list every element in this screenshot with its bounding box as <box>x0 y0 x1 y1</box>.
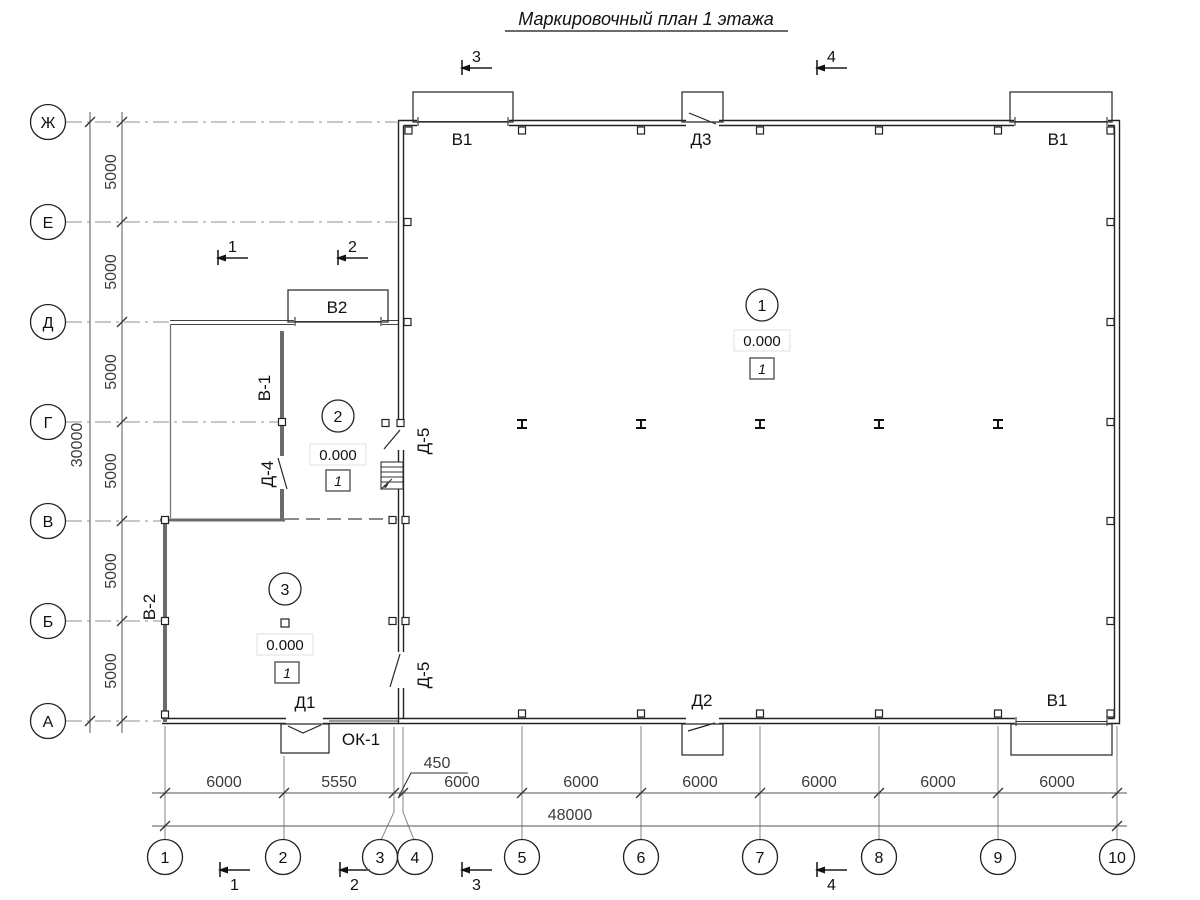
section-mark-3-bottom: 3 <box>472 877 481 894</box>
bottom-dimensions: 6000 5550 6000 6000 6000 6000 6000 6000 … <box>152 755 1127 831</box>
label-wall-v1: В-1 <box>255 375 274 401</box>
section-mark-1-mid: 1 <box>228 239 237 256</box>
section-marks: 3 4 1 2 1 2 3 4 <box>216 49 847 894</box>
dim-5000-5: 5000 <box>103 553 120 589</box>
label-gate-b2: В2 <box>327 298 348 317</box>
col-axis-7: 7 <box>756 850 765 867</box>
room3-finish: 1 <box>283 665 291 681</box>
dim-5000-4: 5000 <box>103 453 120 489</box>
room1-elevation: 0.000 <box>743 333 781 350</box>
dim-b-2: 5550 <box>321 774 357 791</box>
col-axis-lines <box>165 726 1117 840</box>
room3-elevation: 0.000 <box>266 637 304 654</box>
room2-elevation: 0.000 <box>319 447 357 464</box>
label-door-d4: Д-4 <box>258 461 277 488</box>
room1-finish: 1 <box>758 361 766 377</box>
drawing-page: Маркировочный план 1 этажа <box>0 0 1200 900</box>
col-axis-9: 9 <box>994 850 1003 867</box>
label-window-ok1: ОК-1 <box>342 730 380 749</box>
row-axis-v: В <box>43 514 54 531</box>
room3-number: 3 <box>281 582 290 599</box>
row-axis-a: А <box>43 714 54 731</box>
label-wall-v2: В-2 <box>140 594 159 620</box>
room1-number: 1 <box>758 298 767 315</box>
dim-5000-2: 5000 <box>103 254 120 290</box>
section-mark-2-mid: 2 <box>348 239 357 256</box>
col-axis-2: 2 <box>279 850 288 867</box>
opening-labels: В1 Д3 В1 В2 Д1 ОК-1 Д2 В1 В-1 Д-4 Д-5 Д-… <box>140 130 1068 749</box>
column-markers <box>162 127 1115 718</box>
dim-b-3: 6000 <box>444 774 480 791</box>
room-tag-3: 3 0.000 1 <box>257 573 313 683</box>
dim-5000-1: 5000 <box>103 154 120 190</box>
label-door-d3: Д3 <box>691 130 712 149</box>
room-tag-1: 1 0.000 1 <box>734 289 790 379</box>
col-axis-4: 4 <box>411 850 420 867</box>
col-axis-3: 3 <box>376 850 385 867</box>
section-mark-3-top: 3 <box>472 49 481 66</box>
label-door-d5-upper: Д-5 <box>414 428 433 455</box>
label-gate-b1-top-left: В1 <box>452 130 473 149</box>
col-axis-5: 5 <box>518 850 527 867</box>
floor-plan-drawing: Маркировочный план 1 этажа <box>0 0 1200 900</box>
room2-finish: 1 <box>334 473 342 489</box>
dim-b-7: 6000 <box>920 774 956 791</box>
porches <box>281 92 1112 755</box>
col-axis-bubbles: 1 2 3 4 5 6 7 8 9 10 <box>148 840 1135 875</box>
row-axis-b: Б <box>43 614 54 631</box>
dim-5000-6: 5000 <box>103 653 120 689</box>
stairs <box>381 462 403 489</box>
dim-b-8: 6000 <box>1039 774 1075 791</box>
label-door-d1: Д1 <box>295 693 316 712</box>
dim-5000-3: 5000 <box>103 354 120 390</box>
hall-columns <box>517 420 1003 428</box>
dim-offset-450: 450 <box>424 755 451 772</box>
dim-left-total: 30000 <box>69 423 86 468</box>
section-mark-4-bottom: 4 <box>827 877 836 894</box>
col-axis-1: 1 <box>161 850 170 867</box>
row-axis-e: Е <box>43 215 54 232</box>
room2-number: 2 <box>334 409 343 426</box>
row-axis-bubbles: Ж Е Д Г В Б А <box>31 105 66 739</box>
col-axis-6: 6 <box>637 850 646 867</box>
label-gate-b1-bottom-right: В1 <box>1047 691 1068 710</box>
section-mark-4-top: 4 <box>827 49 836 66</box>
row-axis-g: Г <box>44 415 53 432</box>
col-axis-10: 10 <box>1108 850 1126 867</box>
label-door-d5-lower: Д-5 <box>414 662 433 689</box>
dim-bottom-total: 48000 <box>548 807 593 824</box>
section-mark-1-bottom: 1 <box>230 877 239 894</box>
room-tag-2: 2 0.000 1 <box>310 400 366 491</box>
label-gate-b1-top-right: В1 <box>1048 130 1069 149</box>
label-door-d2: Д2 <box>692 691 713 710</box>
section-mark-2-bottom: 2 <box>350 877 359 894</box>
row-axis-d: Д <box>43 315 54 332</box>
dim-b-5: 6000 <box>682 774 718 791</box>
row-axis-zh: Ж <box>41 115 56 132</box>
col-axis-8: 8 <box>875 850 884 867</box>
dim-b-6: 6000 <box>801 774 837 791</box>
room3-column <box>281 619 289 627</box>
dim-b-1: 6000 <box>206 774 242 791</box>
drawing-title: Маркировочный план 1 этажа <box>518 9 773 29</box>
dim-b-4: 6000 <box>563 774 599 791</box>
